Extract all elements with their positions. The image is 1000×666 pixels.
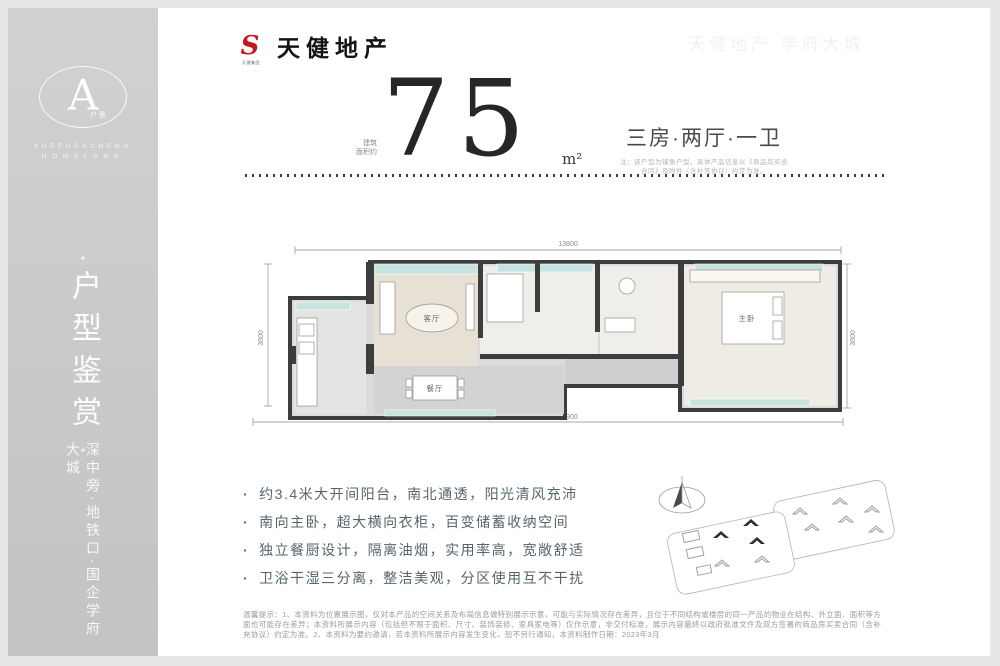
dim-left-label: 3600 xyxy=(258,330,265,346)
area-prefix-line2: 面积约 xyxy=(356,148,377,157)
sidebar-title-block: ◈ 户型鉴赏 ◈ xyxy=(8,254,158,454)
floorplan-drawing: 13800 13900 3600 3600 xyxy=(235,226,855,434)
badge-caption-line2: HOMELAND xyxy=(8,154,158,160)
area-prefix-line1: 建筑 xyxy=(356,139,377,148)
layout-title: 三房·两厅·一卫 xyxy=(606,122,802,152)
feature-item: 独立餐厨设计，隔离油烟，实用率高，宽敞舒适 xyxy=(243,543,585,558)
feature-item: 卫浴干湿三分离，整洁美观，分区使用互不干扰 xyxy=(243,571,585,586)
brand-logo-icon: S xyxy=(237,34,263,58)
badge-caption-line1: XUEFUDACHENG xyxy=(8,144,158,150)
sidebar-vertical-slogan: 深中旁·地铁口·国企学府大城 xyxy=(63,442,103,656)
room-label-living: 客厅 xyxy=(424,313,441,323)
unit-letter-sub: 户型 xyxy=(90,110,108,120)
layout-block: 三房·两厅·一卫 注：该户型为镜像户型，具体产品信息以《商品房买卖 合同》及附件… xyxy=(606,122,802,176)
ornament-top-icon: ◈ xyxy=(80,254,85,262)
area-value: 75 xyxy=(382,66,533,172)
brand-name: 天健地产 xyxy=(277,34,393,62)
area-prefix: 建筑 面积约 xyxy=(356,139,377,157)
dim-right-label: 3600 xyxy=(850,330,855,346)
unit-type-badge: A 户型 XUEFUDACHENG HOMELAND xyxy=(8,66,158,160)
dotted-separator xyxy=(245,174,885,177)
layout-note-line1: 注：该户型为镜像户型，具体产品信息以《商品房买卖 xyxy=(606,159,802,168)
disclaimer-text: 温馨提示：1、本资料为位置展示图，仅对本产品的空间关系及布局信息做特别展示示意，… xyxy=(243,610,881,640)
page-canvas: A 户型 XUEFUDACHENG HOMELAND ◈ 户型鉴赏 ◈ 深中旁·… xyxy=(0,0,1000,666)
feature-item: 南向主卧，超大横向衣柜，百变储蓄收纳空间 xyxy=(243,515,585,530)
sidebar-vertical-title: 户型鉴赏 xyxy=(61,270,105,438)
watermark-text: 天健地产 学府大城 xyxy=(688,30,898,55)
compass-icon xyxy=(659,476,705,513)
site-plan xyxy=(655,470,905,600)
unit-badge-ellipse: A 户型 xyxy=(39,66,127,128)
brand-logo-caption: 天健集团 xyxy=(237,60,265,66)
dim-top-label: 13800 xyxy=(558,241,578,248)
site-plot-left xyxy=(666,510,796,596)
area-unit: m² xyxy=(562,150,582,168)
room-label-dining: 餐厅 xyxy=(427,384,444,393)
feature-list: 约3.4米大开间阳台，南北通透，阳光清风充沛 南向主卧，超大横向衣柜，百变储蓄收… xyxy=(243,487,585,599)
feature-item: 约3.4米大开间阳台，南北通透，阳光清风充沛 xyxy=(243,487,585,502)
sidebar: A 户型 XUEFUDACHENG HOMELAND ◈ 户型鉴赏 ◈ 深中旁·… xyxy=(8,8,158,656)
brand-header: S 天健集团 天健地产 xyxy=(237,34,393,62)
room-label-master: 主卧 xyxy=(739,313,756,323)
